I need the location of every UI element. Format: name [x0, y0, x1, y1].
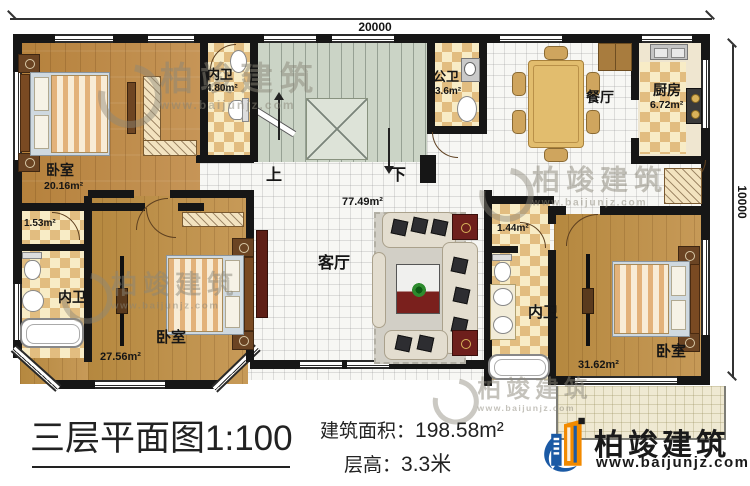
wall-segment — [250, 34, 258, 162]
area-label-bedroom-bl: 27.56m² — [100, 352, 141, 363]
brand-url: www.baijunjz.com — [596, 454, 749, 471]
wall-segment — [600, 206, 710, 215]
stair-direction-arrow — [278, 96, 280, 140]
area-label-kitchen: 6.72m² — [650, 100, 683, 111]
wall-segment — [13, 203, 145, 211]
dining-chair — [512, 110, 526, 134]
wall-segment — [178, 203, 204, 211]
wall-segment — [631, 34, 639, 100]
dining-chair — [544, 148, 568, 162]
room-label-bath-tl: 内卫 — [207, 68, 233, 81]
dining-chair — [512, 72, 526, 96]
stair-down-label: 下 — [390, 168, 406, 184]
side-table — [452, 214, 478, 240]
arrow-up-icon — [274, 92, 284, 100]
window — [642, 34, 692, 43]
room-label-public-bath: 公卫 — [433, 70, 459, 83]
toilet-tank — [492, 254, 512, 261]
area-label-bedroom-tl: 20.16m² — [44, 181, 83, 192]
wall-segment — [484, 196, 554, 204]
area-label-living: 77.49m² — [342, 197, 383, 208]
sofa-arm — [372, 252, 386, 328]
room-label-bath-bl: 内卫 — [58, 290, 86, 304]
area-label-closet-right: 1.44m² — [497, 224, 529, 234]
closet-rack — [143, 140, 197, 156]
cushion — [453, 287, 471, 305]
cushion — [391, 219, 409, 237]
toilet — [228, 100, 243, 120]
building-area-value: 198.58m² — [415, 419, 504, 442]
sofa — [384, 330, 448, 360]
sink — [493, 288, 513, 306]
room-label-dining: 餐厅 — [586, 90, 614, 104]
room-label-bedroom-br: 卧室 — [656, 344, 686, 359]
window — [55, 34, 113, 43]
room-label-bedroom-tl: 卧室 — [46, 163, 74, 177]
wall-segment — [427, 34, 435, 134]
bed — [610, 246, 702, 352]
room-label-living: 客厅 — [318, 256, 350, 272]
cushion — [395, 335, 413, 353]
toilet-tank — [22, 252, 42, 259]
window — [148, 34, 194, 43]
sink — [22, 290, 44, 312]
toilet-tank — [242, 98, 249, 122]
hall-cabinet — [256, 230, 268, 318]
tv-cabinet — [116, 288, 128, 314]
title-underline — [32, 466, 290, 468]
closet-rack — [664, 168, 702, 204]
brand-logo-icon — [540, 416, 588, 474]
stair-direction-arrow — [388, 128, 390, 168]
tv-cabinet — [582, 288, 594, 314]
wall-segment — [196, 155, 254, 163]
coffee-table — [396, 264, 440, 314]
building-area-label: 建筑面积： — [320, 421, 415, 442]
wall-segment — [484, 246, 518, 253]
closet-rack — [143, 76, 161, 148]
wall-segment — [548, 214, 556, 224]
cushion — [431, 219, 449, 237]
wall-segment — [420, 155, 436, 183]
window — [95, 380, 165, 389]
floor-height-label: 层高： — [344, 455, 401, 476]
dining-table — [528, 60, 584, 148]
dining-chair — [586, 110, 600, 134]
dresser — [127, 82, 136, 134]
area-label-closet-left: 1.53m² — [24, 219, 56, 229]
room-label-bedroom-bl: 卧室 — [156, 330, 186, 345]
window — [701, 60, 710, 128]
window — [701, 240, 710, 335]
wall-segment — [479, 34, 487, 134]
balcony-door-window — [575, 376, 677, 385]
floor-height-value: 3.3米 — [401, 453, 451, 476]
kitchen-sink — [650, 44, 688, 60]
toilet — [457, 96, 477, 122]
room-label-bath-br: 内卫 — [528, 305, 558, 320]
toilet — [494, 262, 511, 282]
wall-segment — [13, 244, 88, 251]
wall-segment — [84, 196, 92, 362]
dining-chair — [544, 46, 568, 60]
plan-title: 三层平面图1:100 — [30, 410, 293, 461]
toilet — [24, 260, 41, 280]
bed — [18, 54, 112, 172]
room-label-kitchen: 厨房 — [653, 83, 681, 97]
dimension-line-right — [732, 45, 734, 378]
wall-segment — [170, 190, 254, 198]
side-table — [452, 330, 478, 356]
sink — [464, 62, 476, 76]
closet-rack — [182, 212, 244, 227]
sideboard — [598, 43, 632, 71]
cushion — [411, 217, 429, 235]
stair-void — [306, 98, 368, 160]
window — [300, 360, 342, 369]
floor-plan-sheet: 20000 10000 — [0, 0, 750, 486]
stair-up-label: 上 — [266, 168, 282, 184]
area-label-bedroom-br: 31.62m² — [578, 360, 619, 371]
wall-segment — [88, 190, 134, 198]
wall-segment — [200, 34, 208, 162]
area-label-public-bath: 3.6m² — [435, 87, 461, 97]
sink — [493, 316, 513, 334]
bathtub — [488, 354, 550, 380]
dimension-height-label: 10000 — [736, 172, 748, 232]
window — [500, 34, 562, 43]
window — [332, 34, 394, 43]
area-label-bath-tl: 4.80m² — [206, 84, 238, 94]
wall-segment — [548, 206, 566, 215]
bathtub — [20, 318, 84, 348]
cushion — [451, 257, 469, 275]
building-area-line: 建筑面积：198.58m² — [320, 416, 504, 443]
window — [264, 34, 316, 43]
floor-height-line: 层高：3.3米 — [344, 448, 451, 478]
cushion — [417, 335, 435, 353]
dimension-width-label: 20000 — [340, 21, 410, 33]
stove — [686, 88, 702, 124]
